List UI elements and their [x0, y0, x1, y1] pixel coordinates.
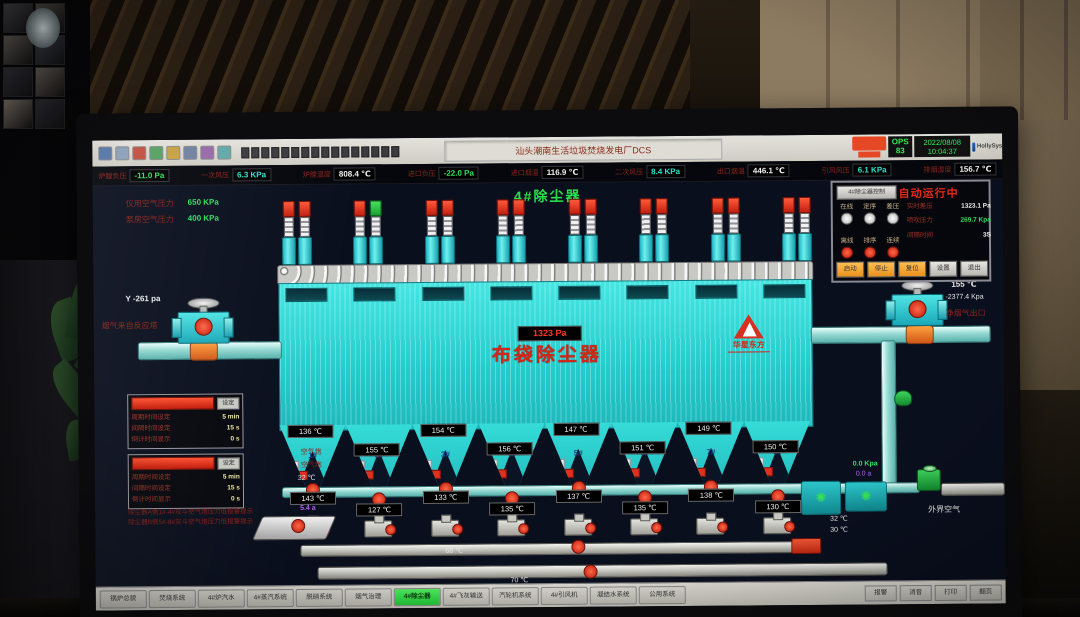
status-label: 进口烟温: [511, 168, 539, 178]
hopper-indicator[interactable]: [755, 467, 764, 476]
hopper-indicator-red[interactable]: [365, 470, 374, 479]
discharge-temp: 138 ℃: [688, 489, 734, 502]
vendor-logo-text: 华星东方: [728, 339, 770, 350]
rotary-feeder[interactable]: [630, 518, 658, 535]
valve-cylinder: [782, 233, 796, 261]
pulse-valve[interactable]: [370, 200, 383, 264]
tab-4#引风机[interactable]: 4#引风机: [541, 586, 588, 604]
valve-piston: [657, 214, 667, 234]
feeder-motor-dot: [386, 524, 397, 535]
mode-label: 定序: [863, 200, 876, 210]
timer-row: 倒计时间显示0 s: [131, 434, 239, 446]
status-field: 炉膛负压-11.0 Pa: [98, 169, 169, 183]
timer-panel-header: 设定: [131, 396, 239, 410]
reading-value: 269.7 Kpa: [960, 214, 990, 229]
timer-label: 间隔时间设定: [131, 423, 170, 434]
pulse-valve-row: [283, 197, 811, 265]
valve-piston: [569, 215, 579, 235]
valve-flange-left: [172, 318, 182, 338]
valve-cap-indicator: [497, 199, 509, 215]
tab-凝结水系统[interactable]: 凝结水系统: [590, 586, 637, 604]
valve-piston: [712, 214, 722, 234]
page-button[interactable]: [391, 146, 399, 157]
tab-4#除尘器[interactable]: 4#除尘器: [394, 587, 441, 605]
outside-air-current: 0.0 a: [856, 470, 872, 477]
hopper-indicator[interactable]: [688, 458, 697, 467]
pulse-valve-pair: [711, 198, 740, 262]
valve-cap-indicator: [513, 199, 525, 215]
panel-button-设置[interactable]: 设置: [929, 261, 957, 277]
status-label: 一次风压: [201, 170, 229, 180]
timer-row: 周期时间设定5 min: [132, 472, 240, 484]
outside-air-pressure: 0.0 Kpa: [853, 460, 878, 467]
valve-cap-indicator: [783, 197, 795, 213]
timer-label: 倒计时间显示: [131, 434, 170, 445]
mode-lamp: 差压: [883, 200, 903, 224]
cctv-thumbnail: [35, 67, 65, 97]
air-supply-value-1: 650 KPa: [188, 198, 219, 209]
lamp-on[interactable]: [864, 246, 876, 258]
blower-fan-2[interactable]: [845, 481, 887, 511]
status-field: 出口烟温446.1 ℃: [717, 164, 790, 178]
green-pump-icon[interactable]: [894, 390, 912, 406]
timer-value: 5 min: [223, 472, 240, 483]
feeder-motor-dot: [651, 522, 662, 533]
page-button[interactable]: [261, 147, 269, 158]
valve-piston: [641, 214, 651, 234]
pulse-control-panel: 4#除尘器控制 自动运行中 在线定序差压 离线排序连续 实时差压1323.1 P…: [831, 180, 992, 283]
mode-label: 离线: [840, 235, 853, 245]
valve-piston: [284, 217, 294, 237]
valve-cap-indicator: [354, 200, 366, 216]
alarm-text: 除尘器B侧5#-8#灰斗空气炮压力低报警提示: [128, 516, 358, 528]
panel-buttons: 启动停止复位设置退出: [836, 261, 988, 278]
tabbar-button-打印[interactable]: 打印: [935, 584, 967, 600]
pulse-valve-pair: [640, 198, 669, 262]
tabbar-button-翻页[interactable]: 翻页: [970, 584, 1002, 600]
panel-reading: 喷吹压力269.7 Kpa: [907, 214, 991, 229]
discharge-temp: 133 ℃: [423, 491, 469, 504]
panel-reading: 间隔时间3S: [907, 228, 991, 243]
mode-lamp: 连续: [883, 234, 903, 258]
pulse-valve-pair: [497, 199, 526, 263]
vessel-hatch: [354, 287, 396, 301]
alarm-banner-icon-small: [858, 151, 880, 157]
timer-panel-tag-button[interactable]: 设定: [217, 397, 239, 409]
valve-cap-indicator: [711, 198, 723, 214]
panel-button-复位[interactable]: 复位: [898, 261, 926, 277]
hopper-indicator[interactable]: [489, 459, 498, 468]
valve-piston: [371, 216, 381, 236]
pulse-valve[interactable]: [283, 201, 296, 265]
valve-cylinder: [639, 234, 653, 262]
page-button[interactable]: [281, 147, 289, 158]
ops-number: 83: [896, 147, 905, 156]
tab-4#飞灰输送[interactable]: 4#飞灰输送: [443, 587, 490, 605]
status-label: 排烟温度: [923, 164, 951, 174]
mode-lamp: 在线: [837, 201, 857, 225]
air-cannon-label-2: 空气炮: [301, 460, 322, 470]
page-button[interactable]: [291, 146, 299, 157]
rotary-feeder[interactable]: [564, 519, 592, 536]
hopper-indicator[interactable]: [622, 458, 631, 467]
cctv-bright-cam: [26, 8, 60, 48]
valve-cylinder: [496, 235, 510, 263]
hopper-indicator[interactable]: [356, 470, 365, 479]
timer-panel-group: 设定周期时间设定5 min间隔时间设定15 s倒计时间显示0 s设定周期时间设定…: [127, 393, 244, 514]
timer-value: 0 s: [230, 434, 239, 445]
rotary-feeder[interactable]: [431, 520, 459, 537]
hopper-indicator[interactable]: [555, 469, 564, 478]
ash-conveyor-upper: [300, 541, 794, 557]
alarm-icon[interactable]: [200, 146, 214, 160]
pulse-valve-pair: [283, 201, 312, 265]
status-label: 炉膛温度: [303, 169, 331, 179]
setup-icon[interactable]: [217, 145, 231, 159]
status-field: 进口烟温116.9 ℃: [511, 166, 584, 180]
timer-row: 周期时间设定5 min: [131, 411, 239, 423]
panel-reading: 实时差压1323.1 Pa: [907, 200, 991, 215]
rotary-feeder[interactable]: [763, 517, 791, 534]
timer-label: 周期时间设定: [131, 412, 170, 423]
status-value: 156.7 ℃: [954, 162, 996, 175]
panel-button-停止[interactable]: 停止: [867, 261, 895, 277]
pulse-valve[interactable]: [568, 199, 581, 263]
hopper-indicator-red[interactable]: [498, 469, 507, 478]
lamp-on[interactable]: [841, 247, 853, 259]
valve-cylinder: [353, 236, 367, 264]
vessel-hatch: [695, 285, 737, 299]
feeder-motor-dot: [784, 521, 795, 532]
valve-cap-indicator: [299, 201, 311, 217]
page-button[interactable]: [321, 146, 329, 157]
pulse-valve-pair: [783, 197, 812, 261]
valve-piston: [427, 216, 437, 236]
lamp-off[interactable]: [841, 213, 853, 225]
timer-panel-tag-button[interactable]: 设定: [218, 457, 240, 469]
status-label: 进口负压: [408, 168, 436, 178]
vessel-hatch: [763, 284, 805, 298]
valve-piston: [355, 216, 365, 236]
tab-公用系统[interactable]: 公用系统: [639, 585, 686, 603]
page-button[interactable]: [251, 147, 259, 158]
pulse-valve[interactable]: [656, 198, 669, 262]
timer-panel-titlebar: [132, 457, 215, 471]
monitor-bezel: 汕头潮南生活垃圾焚烧发电厂DCS OPS 83 2022/08/08 10:04…: [76, 106, 1022, 617]
tab-脱硝系统[interactable]: 脱硝系统: [296, 588, 343, 606]
hopper-indicator[interactable]: [555, 459, 564, 468]
conveyor-temp-upper: 68 ℃: [445, 547, 463, 555]
date-text: 2022/08/08: [923, 137, 961, 146]
discharge-temp: 143 ℃: [290, 492, 336, 505]
hopper-indicator-red[interactable]: [764, 467, 773, 476]
page-button[interactable]: [301, 146, 309, 157]
valve-cylinder: [798, 233, 812, 261]
timer-row: 间隔时间设定15 s: [132, 483, 240, 495]
page-button[interactable]: [331, 146, 339, 157]
instrument-air-row: 仪用空气压力 650 KPa: [126, 198, 219, 210]
pulse-valve[interactable]: [584, 199, 597, 263]
valve-cap-indicator: [568, 199, 580, 215]
air-cannon-label-1: 空气炮: [301, 447, 322, 457]
outside-air-valve[interactable]: [917, 469, 941, 491]
pulse-valve[interactable]: [425, 200, 438, 264]
clean-gas-downcomer-pipe: [881, 340, 897, 490]
outside-air-label: 外界空气: [928, 504, 960, 515]
page-button[interactable]: [351, 146, 359, 157]
pulse-valve-pair: [354, 200, 383, 264]
pulse-valve[interactable]: [727, 198, 740, 262]
hopper-temp-row: 136 ℃155 ℃154 ℃156 ℃147 ℃151 ℃149 ℃150 ℃: [279, 419, 811, 457]
tab-4#炉汽水[interactable]: 4#炉汽水: [198, 589, 245, 607]
vessel-hatch: [558, 286, 600, 300]
status-field: 引风风压6.1 KPa: [822, 163, 892, 177]
lamp-off[interactable]: [864, 212, 876, 224]
conveyor-valve-dot[interactable]: [584, 565, 598, 579]
time-text: 10:04:37: [928, 146, 957, 155]
print-icon[interactable]: [132, 146, 146, 160]
pulse-valve[interactable]: [441, 200, 454, 264]
valve-cylinder: [282, 237, 296, 265]
copy-icon[interactable]: [149, 146, 163, 160]
valve-piston: [443, 216, 453, 236]
blower-temp-1: 32 ℃: [830, 515, 848, 523]
vendor-logo-icon: [734, 314, 764, 338]
timer-label: 周期时间设定: [132, 472, 171, 483]
valve-cylinder: [369, 236, 383, 264]
pulse-valve[interactable]: [513, 199, 526, 263]
valve-cylinder: [710, 234, 724, 262]
pulse-valve[interactable]: [640, 198, 653, 262]
pulse-valve[interactable]: [497, 199, 510, 263]
hopper-indicator[interactable]: [622, 468, 631, 477]
mode-label: 差压: [886, 200, 899, 210]
blower-fan-1[interactable]: [801, 481, 841, 515]
mode-lamps-on: 离线排序连续: [837, 234, 903, 259]
status-field: 一次风压6.3 KPa: [201, 168, 271, 182]
inlet-damper-valve[interactable]: [175, 298, 229, 354]
hopper-indicator-red[interactable]: [631, 468, 640, 477]
datetime-display: 2022/08/08 10:04:37: [914, 136, 970, 157]
lamp-off[interactable]: [887, 212, 899, 224]
inlet-pressure: Y -261 pa: [125, 294, 160, 303]
hmi-main-area: 4#除尘器 仪用空气压力 650 KPa 泵房空气压力 400 KPa 1323…: [93, 179, 1006, 586]
status-value: 446.1 ℃: [748, 164, 790, 177]
hopper-indicator[interactable]: [423, 470, 432, 479]
timer-panel: 设定周期时间设定5 min间隔时间设定15 s倒计时间显示0 s: [127, 393, 243, 449]
hopper-temp: 147 ℃: [553, 423, 599, 436]
status-value: 808.4 ℃: [334, 167, 376, 180]
pulse-valve[interactable]: [711, 198, 724, 262]
reading-label: 喷吹压力: [907, 214, 933, 229]
hopper-indicator-red[interactable]: [697, 468, 706, 477]
pulse-valve[interactable]: [799, 197, 812, 261]
page-button[interactable]: [361, 146, 369, 157]
valve-cylinder: [298, 237, 312, 265]
rotary-feeder[interactable]: [497, 519, 525, 536]
hopper-indicator[interactable]: [754, 457, 763, 466]
status-field: 二次风压8.4 KPa: [615, 165, 685, 179]
valve-cylinder: [425, 236, 439, 264]
hopper-indicator-red[interactable]: [432, 470, 441, 479]
mode-lamp: 定序: [860, 200, 880, 224]
outlet-pressure: -2377.4 Kpa: [945, 294, 983, 301]
feeder-motor-dot: [518, 523, 529, 534]
tab-烟气治理[interactable]: 烟气治理: [345, 588, 392, 606]
tab-4#蒸汽系统[interactable]: 4#蒸汽系统: [247, 589, 294, 607]
reading-value: 1323.1 Pa: [961, 200, 991, 215]
rotary-feeder[interactable]: [697, 518, 725, 535]
baghouse-vessel: 1323 Pa 布袋除尘器 华星东方: [278, 279, 813, 431]
valve-cylinder: [655, 234, 669, 262]
pulse-valve[interactable]: [354, 200, 367, 264]
alarm-banner-icon[interactable]: [852, 136, 886, 150]
hopper-temp: 150 ℃: [752, 440, 798, 453]
vessel-hatch: [490, 286, 532, 300]
valve-piston: [300, 217, 310, 237]
valve-cylinder: [584, 235, 598, 263]
lamp-on[interactable]: [887, 246, 899, 258]
tab-汽轮机系统[interactable]: 汽轮机系统: [492, 587, 539, 605]
hopper-indicator-red[interactable]: [564, 469, 573, 478]
panel-corner-button[interactable]: 4#除尘器控制: [837, 185, 897, 199]
mode-lamp: 离线: [837, 235, 857, 259]
outlet-label: 净烟气出口: [946, 308, 986, 319]
panel-button-启动[interactable]: 启动: [836, 262, 864, 278]
valve-flange-right: [224, 317, 234, 337]
panel-button-退出[interactable]: 退出: [960, 261, 988, 277]
tab-锅炉总貌[interactable]: 锅炉总貌: [100, 590, 147, 608]
reading-label: 间隔时间: [907, 229, 933, 244]
rotary-feeder-row: [280, 511, 812, 539]
page-button[interactable]: [341, 146, 349, 157]
valve-cap-indicator: [656, 198, 668, 214]
conveyor-valve-dot[interactable]: [571, 540, 585, 554]
page-button[interactable]: [381, 146, 389, 157]
pulse-valve[interactable]: [299, 201, 312, 265]
timer-label: 倒计时间显示: [132, 494, 171, 505]
tabbar-button-消音[interactable]: 消音: [900, 585, 932, 601]
hopper-indicator[interactable]: [489, 469, 498, 478]
timer-value: 5 min: [222, 411, 239, 422]
mode-lamps-off: 在线定序差压: [837, 200, 903, 225]
air-cannon-temp: 32 ℃: [298, 474, 316, 482]
conveyor-end-gate: [791, 538, 821, 554]
valve-cap-indicator: [640, 198, 652, 214]
timer-panel: 设定周期时间设定5 min间隔时间设定15 s倒计时间显示0 s: [128, 454, 244, 510]
hopper-temp: 155 ℃: [354, 443, 400, 456]
tab-焚烧系统[interactable]: 焚烧系统: [149, 589, 196, 607]
valve-piston: [728, 214, 738, 234]
tabbar-button-报警[interactable]: 报警: [865, 585, 897, 601]
status-label: 出口烟温: [717, 166, 745, 176]
save-icon[interactable]: [115, 146, 129, 160]
valve-flange-left: [885, 300, 895, 320]
hopper-indicator[interactable]: [688, 468, 697, 477]
rotary-feeder[interactable]: [365, 520, 393, 537]
mode-label: 连续: [886, 234, 899, 244]
status-label: 炉膛负压: [98, 171, 126, 181]
hopper-temp: 156 ℃: [487, 442, 533, 455]
status-field: 排烟温度156.7 ℃: [923, 162, 996, 176]
cctv-thumbnail: [3, 99, 33, 129]
vessel-hatch: [285, 288, 327, 302]
page-button[interactable]: [371, 146, 379, 157]
inlet-label: 烟气来自反应塔: [102, 320, 158, 331]
status-label: 二次风压: [615, 167, 643, 177]
valve-cylinder: [726, 233, 740, 261]
valve-piston: [800, 213, 810, 233]
valve-cylinder: [512, 235, 526, 263]
hopper-temp: 151 ℃: [620, 441, 666, 454]
timer-value: 15 s: [227, 483, 240, 494]
status-value: 116.9 ℃: [542, 166, 584, 179]
outlet-damper-valve[interactable]: [889, 280, 943, 336]
pump-air-row: 泵房空气压力 400 KPa: [126, 214, 219, 226]
air-supply-label-2: 泵房空气压力: [126, 214, 174, 225]
vessel-hatch: [422, 287, 464, 301]
ops-station-badge: OPS 83: [888, 136, 912, 157]
valve-cap-indicator: [799, 197, 811, 213]
mode-lamp: 排序: [860, 234, 880, 258]
timer-row: 倒计时间显示0 s: [132, 494, 240, 506]
status-value: -22.0 Pa: [439, 167, 479, 180]
hopper-indicator[interactable]: [290, 461, 299, 470]
pulse-valve[interactable]: [783, 197, 796, 261]
feeder-motor-dot: [452, 524, 463, 535]
valve-piston: [585, 215, 595, 235]
hopper-temp: 149 ℃: [686, 422, 732, 435]
hollysys-logo: HollySys: [972, 136, 1002, 156]
hollysys-logo-text: HollySys: [977, 143, 1002, 149]
status-label: 引风风压: [822, 165, 850, 175]
trend-icon[interactable]: [183, 146, 197, 160]
hopper-indicator[interactable]: [422, 460, 431, 469]
alarm-text-lines: 除尘器A侧1#-4#灰斗空气炮压力低报警提示除尘器B侧5#-8#灰斗空气炮压力低…: [128, 507, 358, 528]
timer-row: 间隔时间设定15 s: [131, 422, 239, 434]
tab-spacer: [688, 593, 862, 594]
outside-air-pipe: [941, 482, 1005, 496]
mode-label: 在线: [840, 201, 853, 211]
page-button[interactable]: [311, 146, 319, 157]
valve-cap-indicator: [727, 198, 739, 214]
pulse-valve-pair: [568, 199, 597, 263]
valve-cap-indicator: [283, 201, 295, 217]
valve-cylinder: [441, 236, 455, 264]
valve-piston: [784, 213, 794, 233]
vendor-logo: 华星东方: [728, 314, 770, 352]
status-value: 8.4 KPa: [646, 165, 685, 178]
timer-panel-header: 设定: [132, 457, 240, 471]
blower-temp-2: 30 ℃: [830, 526, 848, 534]
hopper-indicator[interactable]: [356, 460, 365, 469]
valve-cap-indicator: [584, 199, 596, 215]
reading-value: 3S: [983, 228, 991, 242]
hopper-temp: 154 ℃: [420, 424, 466, 437]
control-room-photo: 汕头潮南生活垃圾焚烧发电厂DCS OPS 83 2022/08/08 10:04…: [0, 0, 1080, 617]
timer-label: 间隔时间设定: [132, 483, 171, 494]
file-icon[interactable]: [98, 146, 112, 160]
feeder-motor-dot: [585, 523, 596, 534]
pulse-valve-pair: [425, 200, 454, 264]
valve-piston: [498, 215, 508, 235]
feeder-motor-dot: [718, 522, 729, 533]
timer-value: 15 s: [227, 422, 240, 433]
discharge-temp: 137 ℃: [556, 490, 602, 503]
page-button[interactable]: [241, 147, 249, 158]
zoom-icon[interactable]: [166, 146, 180, 160]
page-button[interactable]: [271, 147, 279, 158]
